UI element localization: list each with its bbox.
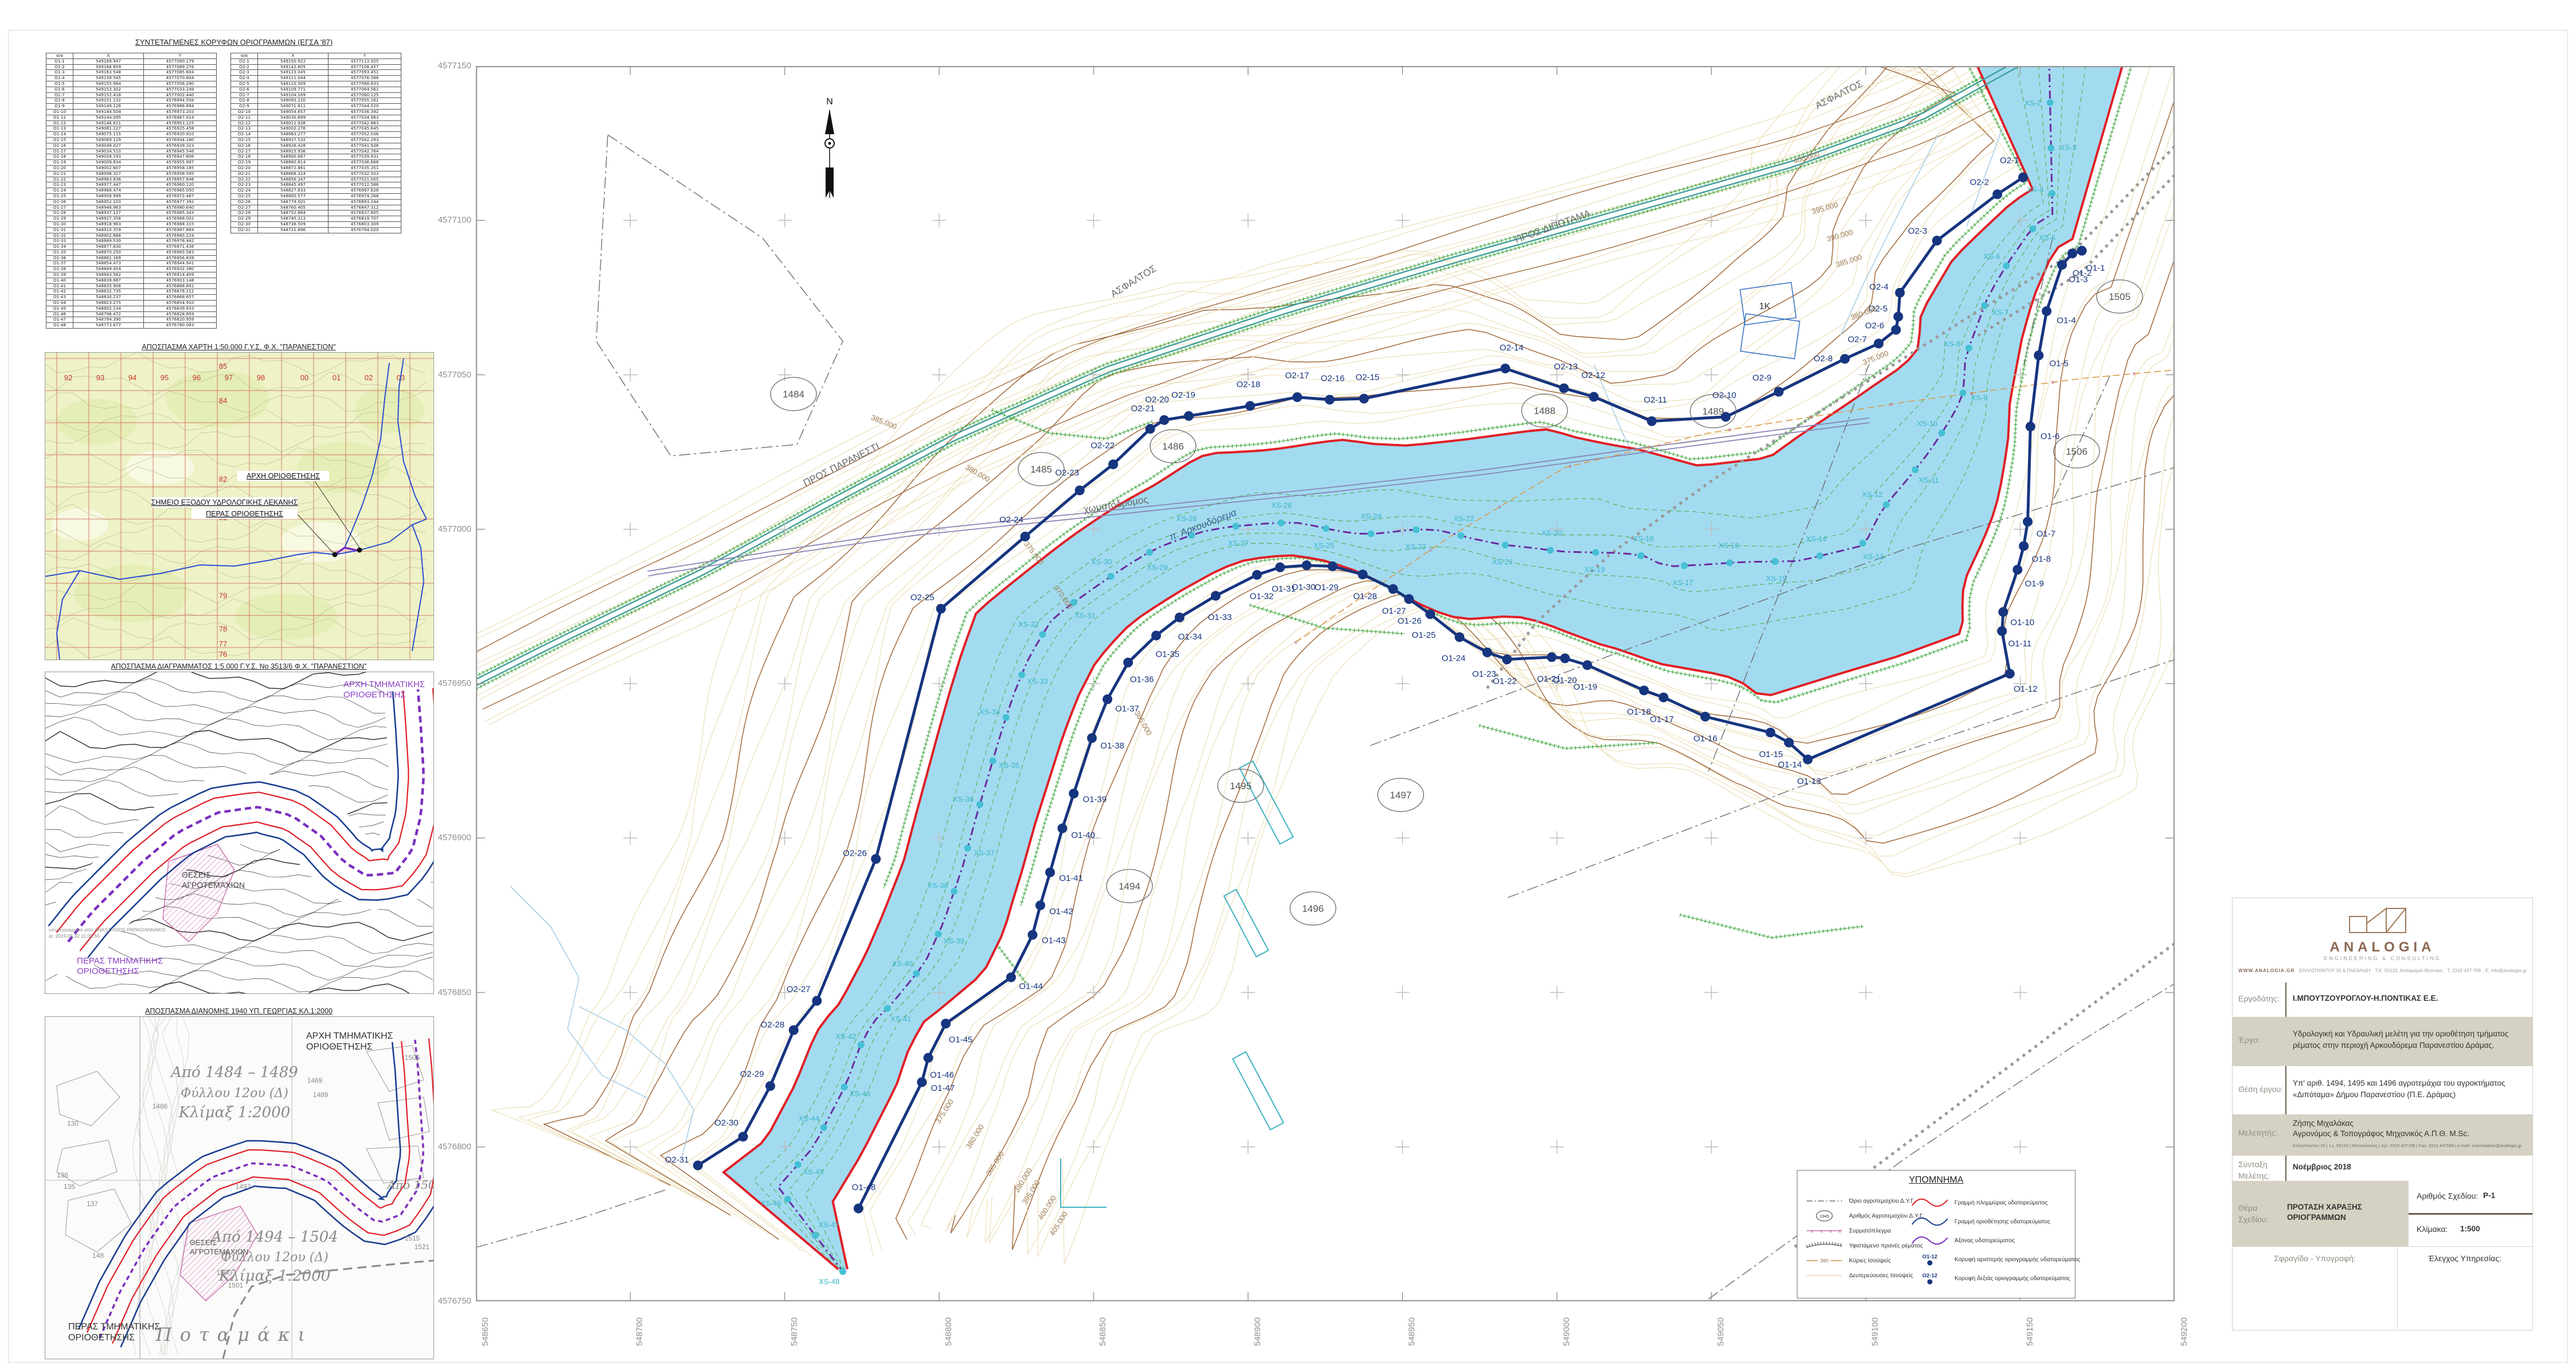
xs-section-label: XS-36 [953, 795, 974, 804]
grid-cross [1241, 677, 1255, 691]
o1-point [1784, 738, 1794, 747]
o2-point [765, 1081, 775, 1091]
o2-point-label: O2-9 [1753, 373, 1772, 383]
svg-text:O1-12: O1-12 [1922, 1254, 1937, 1260]
xs-section-point [913, 970, 920, 977]
legend: ΥΠΟΜΝΗΜΑ Όριο αγροτεμαχίου Δ.Υ.Γ.1945Αρι… [1797, 1170, 2075, 1298]
xs-section-point [1039, 631, 1046, 638]
xs-section-label: XS-40 [892, 960, 913, 968]
xs-section-label: XS-41 [890, 1015, 911, 1023]
xs-section-point [839, 1268, 846, 1275]
title-block: ANALOGIA ENGINEERING & CONSULTING WWW.AN… [2232, 898, 2533, 1331]
o1-point [1455, 632, 1464, 642]
table-row: O2-19548880.8144577036.668 [231, 160, 401, 166]
parcel-number: 1488 [1534, 405, 1555, 416]
xs-section-point [1883, 501, 1890, 508]
o2-point [693, 1160, 703, 1170]
peras-tmimatikis-label: ΠΕΡΑΣ ΤΜΗΜΑΤΙΚΗΣ [77, 956, 163, 966]
o2-point [1932, 236, 1942, 245]
x-axis-label: 548700 [635, 1317, 644, 1346]
svg-text:x: x [1830, 1228, 1832, 1234]
table-row: O2-10549054.6574577036.392 [231, 109, 401, 115]
grid-number: 00 [300, 373, 308, 382]
grid-cross [1550, 1140, 1564, 1154]
parcel-number: 1489 [1702, 406, 1724, 417]
svg-text:ΑΓΡΟΤΕΜΑΧΙΩΝ: ΑΓΡΟΤΕΜΑΧΙΩΝ [190, 1247, 248, 1256]
svg-text:x: x [1839, 1228, 1842, 1234]
o1-point [1358, 570, 1367, 579]
o1-point [1404, 594, 1414, 604]
grid-number: 02 [365, 373, 373, 382]
contour-label: 385.000 [870, 413, 898, 431]
o1-point [924, 1053, 933, 1063]
o1-point-label: O1-23 [1472, 669, 1496, 679]
o2-point [2018, 173, 2028, 182]
svg-text:ΟΡΙΟΘΕΤΗΣΗΣ: ΟΡΙΟΘΕΤΗΣΗΣ [77, 966, 139, 976]
o2-point-label: O2-4 [1869, 282, 1888, 292]
svg-text:x: x [1820, 1228, 1823, 1234]
xs-section-point [1592, 549, 1599, 556]
o1-point-label: O1-18 [1627, 707, 1651, 717]
y-axis-label: 4576900 [430, 833, 471, 843]
o1-point [1659, 692, 1668, 702]
o1-point-label: O1-31 [1272, 584, 1296, 594]
xs-section-label: XS-24 [1361, 512, 1381, 521]
xs-section-point [1938, 430, 1945, 436]
fence-x-mark: x [1295, 639, 1297, 646]
o1-point-label: O1-29 [1315, 583, 1339, 592]
channel-shape [1233, 1052, 1284, 1130]
xs-section-label: XS-31 [1074, 611, 1095, 619]
handwritten-note: Από 1494 – 1504 [210, 1228, 338, 1246]
xs-section-point [1323, 525, 1330, 532]
xs-section-label: XS-19 [1584, 565, 1605, 574]
o1-point [854, 1204, 863, 1214]
xs-section-point [1018, 672, 1025, 678]
xs-section-label: XS-43 [850, 1090, 870, 1098]
legend-item-label: Όριο αγροτεμαχίου Δ.Υ.Γ. [1849, 1198, 1915, 1204]
o1-point [2026, 422, 2035, 431]
inset-map-50k: 92939495969798000102038584828179787776ΑΡ… [45, 352, 434, 660]
sfragida-label: Σφραγίδα - Υπογραφή: [2233, 1254, 2397, 1263]
grid-number: 79 [219, 591, 227, 600]
elegxos-cell: Έλεγχος Υπηρεσίας: [2397, 1247, 2532, 1329]
grid-cross [1241, 1140, 1255, 1154]
o1-point-label: O1-28 [1353, 591, 1377, 601]
grid-cross [1859, 677, 1873, 691]
o1-point [2012, 565, 2022, 575]
north-arrow-icon: N [825, 97, 834, 198]
table-row: O1-16549048.0274576939.323 [46, 143, 217, 149]
o1-point [2077, 246, 2087, 256]
parcel-number: 1515 [405, 1234, 420, 1242]
o2-point-label: O2-19 [1171, 390, 1195, 400]
table-row: O2-1549150.9224577113.925 [231, 58, 401, 64]
table-row: O1-39548843.5624576914.409 [46, 272, 217, 278]
grid-cross [932, 677, 946, 691]
handwritten-note: Από 1484 – 1489 [170, 1064, 298, 1081]
o2-point [1500, 364, 1510, 373]
wave-purple-icon [1910, 1234, 1950, 1248]
o2-point [1146, 424, 1155, 434]
o1-point [2023, 517, 2032, 526]
shmeio-exodou-label: ΣΗΜΕΙΟ ΕΞΟΔΟΥ ΥΔΡΟΛΟΓΙΚΗΣ ΛΕΚΑΝΗΣ [151, 498, 298, 506]
parcel-number: 1497 [236, 1183, 251, 1191]
point-o-icon: O2-12 [1910, 1272, 1950, 1286]
o1-point-label: O1-22 [1493, 677, 1517, 687]
thesi-label: Θέση έργου: [2238, 1085, 2283, 1094]
table-row: O1-29548927.3584576988.002 [46, 216, 217, 222]
table-row: O2-29548745.3134576819.707 [231, 216, 401, 222]
klimaka-value: 1:500 [2460, 1224, 2526, 1233]
y-axis-label: 4577150 [430, 61, 471, 71]
o1-point-label: O1-27 [1382, 606, 1406, 616]
o1-point-label: O1-46 [930, 1070, 954, 1080]
o2-point-label: O2-22 [1090, 440, 1115, 450]
o2-point-label: O2-21 [1131, 404, 1155, 414]
o2-point [1184, 411, 1194, 421]
o2-point-label: O2-7 [1848, 335, 1867, 345]
table-row: O1-6549153.3024577033.249 [46, 87, 217, 92]
xs-section-label: XS-13 [1863, 552, 1883, 561]
o1-point-label: O1-42 [1049, 907, 1073, 916]
table-row: O1-19549009.8344576955.997 [46, 160, 217, 166]
y-axis-label: 4577100 [430, 215, 471, 225]
xs-section-label: XS-16 [1718, 541, 1739, 549]
table-row: O2-24548827.8334576997.628 [231, 188, 401, 194]
slope-hatch-ticks [1680, 915, 1863, 938]
contour-label: 385.000 [1835, 252, 1863, 269]
o2-point-label: O2-23 [1055, 468, 1079, 478]
fence-x-mark: x [1498, 504, 1501, 510]
grid-number: 77 [219, 639, 227, 648]
o1-point-label: O1-36 [1130, 675, 1154, 685]
xs-section-label: XS-37 [974, 848, 994, 857]
contact-item: T. 2310 437 799 [2447, 968, 2481, 973]
o2-point [1874, 338, 1883, 348]
svg-text:1945: 1945 [1820, 1214, 1830, 1219]
o1-point-label: O1-33 [1208, 613, 1232, 622]
grid-cross [1241, 831, 1255, 845]
svg-text:ΑΓΡΟΤΕΜΑΧΙΩΝ: ΑΓΡΟΤΕΜΑΧΙΩΝ [182, 880, 245, 890]
parcel-number: 1506 [2066, 446, 2088, 457]
xs-section-label: XS-30 [1091, 557, 1112, 566]
o1-point [1483, 648, 1492, 657]
contact-item: WWW.ANALOGIA.GR [2238, 968, 2294, 973]
road-label: ΑΣΦΑΛΤΟΣ [1813, 78, 1864, 111]
table-row: O1-30548918.9634576988.315 [46, 221, 217, 227]
legend-item-label: Κύριες Ισοϋψείς [1849, 1258, 1891, 1264]
thema-value-1: ΠΡΟΤΑΣΗ ΧΑΡΑΞΗΣ [2287, 1203, 2402, 1211]
o1-point-label: O1-17 [1650, 715, 1674, 724]
arithmos-label: Αριθμός Σχεδίου: [2417, 1191, 2478, 1200]
o1-point [1999, 607, 2008, 617]
legend-item-label: Άξονας υδατορεύματος [1955, 1238, 2015, 1244]
x-axis-label: 549150 [2025, 1317, 2035, 1346]
parcel-number: 1521 [415, 1243, 430, 1251]
xs-section-point [1413, 526, 1420, 533]
o1-point [1560, 653, 1570, 663]
contour-label: 390.000 [1826, 228, 1854, 243]
table-row: O1-45548802.1344576839.933 [46, 306, 217, 311]
o1-point-label: O1-3 [2069, 275, 2088, 284]
analogia-logo-icon [2345, 903, 2419, 938]
table-row: O1-21548998.3274576958.595 [46, 171, 217, 177]
syntaxi-value: Νοέμβριος 2018 [2293, 1163, 2526, 1171]
o1-point [2034, 350, 2043, 360]
legend-left-column: Όριο αγροτεμαχίου Δ.Υ.Γ.1945Αριθμός Αγρο… [1804, 1194, 1924, 1283]
grid-cross [1086, 986, 1100, 1000]
map-frame [476, 67, 2174, 1301]
o1-point-label: O1-15 [1759, 750, 1783, 759]
xs-section-point [1912, 466, 1918, 473]
o1-point [1275, 563, 1285, 572]
xs-section-label: XS-6 [1984, 252, 2000, 260]
channel-shape [1224, 890, 1269, 957]
o1-point-label: O1-12 [2014, 684, 2038, 694]
row-ergodotis: Εργοδότης: Ι.ΜΠΟΥΤΖΟΥΡΟΓΛΟΥ-Η.ΠΟΝΤΙΚΑΣ Ε… [2233, 982, 2532, 1017]
legend-item: Γραμμή οριοθέτησης υδατορεύματος [1910, 1212, 2080, 1231]
xs-section-point [784, 1196, 791, 1203]
xs-section-point [964, 845, 971, 852]
x-axis-label: 549000 [1562, 1317, 1572, 1346]
company-name: ANALOGIA [2233, 939, 2532, 955]
o2-point [1992, 189, 2002, 199]
fence-x-mark: x [1809, 414, 1812, 420]
xs-section-point [2047, 99, 2054, 106]
row-meletitis: Μελετητής: Ζήσης Μιχαλάκας Αγρονόμος & Τ… [2233, 1114, 2532, 1156]
o2-point [1893, 312, 1903, 322]
syntaxi-label: Σύνταξη Μελέτης: [2238, 1159, 2284, 1181]
x-axis-label: 548850 [1098, 1317, 1108, 1346]
o1-point [2005, 669, 2015, 678]
o2-point-label: O2-10 [1713, 391, 1737, 400]
xs-section-point [841, 1083, 848, 1090]
legend-item-label: Κορυφή αριστερής οριογραμμής υδατορεύματ… [1955, 1257, 2080, 1263]
xs-section-point [951, 888, 957, 895]
ergo-label: Έργο: [2238, 1035, 2260, 1044]
table-row: O1-9549149.1284576986.894 [46, 104, 217, 110]
grid-cross [1086, 1140, 1100, 1154]
legend-item: Όριο αγροτεμαχίου Δ.Υ.Γ. [1804, 1194, 1924, 1208]
o1-point-label: O1-8 [2032, 555, 2051, 564]
xs-section-point [884, 1005, 891, 1012]
o2-point-label: O2-3 [1908, 226, 1927, 236]
contour-label: 405.000 [1047, 1210, 1069, 1238]
o1-point [1803, 755, 1813, 765]
o1-point [1328, 561, 1338, 571]
arxi-oriothetisis-label: ΑΡΧΗ ΟΡΙΟΘΕΤΗΣΗΣ [247, 472, 320, 480]
o1-point [1006, 973, 1016, 982]
parcel-number: 1501 [228, 1281, 244, 1289]
thema-value-2: ΟΡΙΟΓΡΑΜΜΩΝ [2287, 1213, 2402, 1222]
xs-section-label: XS-9 [1971, 393, 1988, 402]
table-row: O2-25548800.5774576974.268 [231, 193, 401, 199]
xs-section-point [1637, 552, 1644, 559]
xs-section-label: XS-35 [999, 761, 1019, 770]
grid-cross [1859, 368, 1873, 382]
dashdot-icon [1804, 1194, 1844, 1208]
table-row: O1-34548877.8304576971.436 [46, 244, 217, 250]
o1-point-label: O1-40 [1071, 830, 1095, 840]
parcel-boundary-line [1508, 660, 2175, 898]
parcel-number: 1500 [217, 1269, 232, 1277]
contour-label: 395.000 [1811, 200, 1839, 216]
o2-point [812, 996, 822, 1005]
meletitis-contact: Ελλησπόντου 26 | τ.κ. 55132 | Θεσσαλονίκ… [2293, 1143, 2526, 1148]
o1-point-label: O1-47 [931, 1083, 955, 1093]
arithmos-cell: Αριθμός Σχεδίου: P-1 [2409, 1181, 2532, 1213]
xs-section-label: XS-25 [1314, 541, 1334, 549]
legend-item: xxxxΣυρματόπλεγμα [1804, 1223, 1924, 1238]
contact-item: E. info@analogia.gr [2485, 968, 2527, 973]
o2-point-label: O2-14 [1500, 343, 1524, 353]
o1-point-label: O1-7 [2036, 529, 2055, 539]
o2-point [789, 1025, 799, 1035]
row-syntaxi: Σύνταξη Μελέτης: Νοέμβριος 2018 [2233, 1156, 2532, 1181]
o2-point-label: O2-25 [910, 592, 935, 602]
coordinate-table-title: ΣΥΝΤΕΤΑΓΜΕΝΕΣ ΚΟΡΥΦΩΝ ΟΡΙΟΓΡΑΜΜΩΝ (ΕΓΣΑ … [45, 38, 423, 46]
o2-point-label: O2-15 [1355, 372, 1379, 382]
table-row: O1-40548839.8874576903.148 [46, 278, 217, 283]
xs-section-point [2029, 225, 2036, 232]
wave-blue-icon [1910, 1215, 1950, 1229]
grid-cross [623, 522, 637, 536]
o1-point-label: O1-41 [1059, 873, 1083, 883]
legend-item-label: Γραμμή πλημμύρας υδατορεύματος [1955, 1200, 2048, 1206]
table-row: O1-31548910.3594576987.664 [46, 227, 217, 233]
o2-point [1895, 288, 1905, 298]
o1-point-label: O1-13 [1797, 777, 1821, 786]
xs-section-label: XS-3 [2060, 143, 2077, 152]
svg-text:O2-12: O2-12 [1922, 1273, 1937, 1279]
o1-coordinate-table: α/αXYO1-1549169.9474577090.179O1-2549166… [46, 53, 217, 329]
table-row: O2-14548983.2774577052.036 [231, 132, 401, 138]
xs-section-point [812, 1232, 819, 1239]
contour-label: 400.000 [1036, 1194, 1058, 1222]
o1-point-label: O1-14 [1778, 760, 1802, 770]
o1-point [1027, 930, 1037, 940]
y-axis-label: 4577050 [430, 370, 471, 380]
thema-cell: Θέμα Σχεδίου: ΠΡΟΤΑΣΗ ΧΑΡΑΞΗΣ ΟΡΙΟΓΡΑΜΜΩ… [2233, 1181, 2409, 1246]
o2-point-label: O2-12 [1581, 370, 1605, 380]
o1-point-label: O1-9 [2025, 579, 2044, 588]
grid-cross [1705, 986, 1718, 1000]
o2-coordinate-table: α/αXYO2-1549150.9224577113.925O2-2549142… [230, 53, 401, 233]
xs-section-point [1726, 559, 1733, 566]
contour-minor-icon [1804, 1269, 1844, 1282]
grid-cross [1705, 1140, 1718, 1154]
legend-item: Υφιστάμενο πρανές ρέματος [1804, 1238, 1924, 1253]
legend-item: Γραμμή πλημμύρας υδατορεύματος [1910, 1194, 2080, 1212]
xs-section-label: XS-17 [1672, 578, 1693, 587]
meletitis-role: Αγρονόμος & Τοπογράφος Μηχανικός Α.Π.Θ. … [2293, 1129, 2526, 1138]
xs-section-label: XS-26 [1271, 501, 1292, 510]
xs-section-label: XS-29 [1147, 563, 1168, 572]
parcel-number: 1484 [783, 389, 804, 400]
parcel-number: 1485 [1030, 464, 1052, 475]
o1-point [1103, 695, 1112, 704]
grid-cross [623, 1140, 637, 1154]
table-row: O1-20549002.6074576958.185 [46, 165, 217, 171]
slope-icon [1804, 1239, 1844, 1253]
parcel-number: 1494 [1119, 881, 1140, 892]
xs-section-label: XS-47 [819, 1220, 839, 1229]
xs-section-label: XS-42 [835, 1032, 856, 1040]
signature-text: υπογεγραμμένο από ANASTASIOS PAPAGIANNAK… [49, 927, 166, 933]
grid-cross [932, 213, 946, 227]
road-label: ΑΣΦΑΛΤΟΣ [1109, 263, 1159, 299]
o2-point-label: O2-8 [1813, 354, 1832, 364]
grid-cross [1396, 1140, 1409, 1154]
xs-section-label: XS-46 [761, 1199, 781, 1207]
table-row: O2-31548721.8964576794.020 [231, 227, 401, 233]
o2-point-label: O2-16 [1321, 373, 1345, 383]
o2-point [1292, 392, 1302, 402]
table-row: O2-11549030.6994577034.983 [231, 115, 401, 120]
handwritten-note: Φύλλου 12ου (Δ) [181, 1086, 288, 1101]
grid-cross [1241, 213, 1255, 227]
grid-cross [1241, 986, 1255, 1000]
o1-point-label: O1-10 [2011, 618, 2035, 627]
o1-point [1301, 560, 1311, 570]
o2-point-label: O2-6 [1865, 321, 1884, 330]
table-row: O2-5549110.5094577068.833 [231, 81, 401, 87]
sfragida-cell: Σφραγίδα - Υπογραφή: [2233, 1247, 2398, 1329]
legend-item-label: Συρματόπλεγμα [1849, 1228, 1891, 1234]
o1-point [1582, 660, 1592, 670]
legend-item: Δευτερεύουσες Ισοϋψείς [1804, 1268, 1924, 1283]
table-header: α/αXY [231, 53, 401, 59]
grid-cross [778, 213, 792, 227]
handwritten-note: Κλίμαξ 1:2000 [178, 1104, 291, 1121]
road-label: ΠΡΟΣ ΠΑΡΑΝΕΣΤΙ [802, 440, 881, 488]
o2-point-label: O2-1 [2000, 156, 2019, 166]
o2-point [1159, 415, 1169, 425]
ergodotis-label: Εργοδότης: [2238, 994, 2279, 1003]
xs-section-label: XS-44 [799, 1114, 819, 1122]
o2-point [1774, 387, 1784, 397]
grid-number: 85 [219, 362, 227, 370]
survey-sheet: ΣΥΝΤΕΤΑΓΜΕΝΕΣ ΚΟΡΥΦΩΝ ΟΡΙΟΓΡΑΜΜΩΝ (ΕΓΣΑ … [0, 0, 2576, 1369]
parcel-number: 130 [67, 1120, 79, 1128]
xs-section-label: XS-32 [1018, 620, 1039, 629]
parcel-number: 148 [92, 1251, 104, 1259]
peras-oriothetisis-label: ΠΕΡΑΣ ΟΡΙΟΘΕΤΗΣΗΣ [206, 510, 283, 518]
legend-title: ΥΠΟΜΝΗΜΑ [1797, 1175, 2075, 1185]
o2-point-label: O2-27 [787, 984, 811, 994]
table-row: O2-21548868.3244577032.503 [231, 171, 401, 177]
fence-icon: xxxx [1804, 1224, 1844, 1238]
y-axis-label: 4576750 [430, 1296, 471, 1306]
o2-point-label: O2-24 [999, 515, 1023, 525]
o1-point-label: O1-21 [1537, 674, 1561, 684]
xs-section-point [1278, 520, 1285, 526]
table-row: O1-14549075.1154576930.910 [46, 132, 217, 138]
x-axis-label: 548950 [1407, 1317, 1417, 1346]
parcel-number: 1497 [1390, 790, 1412, 801]
thesi-value: Υπ' αριθ. 1494, 1495 και 1496 αγροτεμάχι… [2293, 1078, 2526, 1100]
company-subtitle: ENGINEERING & CONSULTING [2233, 955, 2532, 961]
contour-label: 365.000 [1133, 709, 1154, 737]
channel-shape [1240, 761, 1293, 844]
contour-label: 385.000 [984, 1150, 1006, 1177]
o2-point [1245, 401, 1255, 411]
o1-point [1765, 728, 1775, 738]
grid-cross [1705, 831, 1718, 845]
inset3-title: ΑΠΟΣΠΑΣΜΑ ΔΙΑΝΟΜΗΣ 1940 ΥΠ. ΓΕΩΡΓΙΑΣ ΚΛ.… [45, 1007, 433, 1015]
o1-point [2019, 541, 2028, 551]
